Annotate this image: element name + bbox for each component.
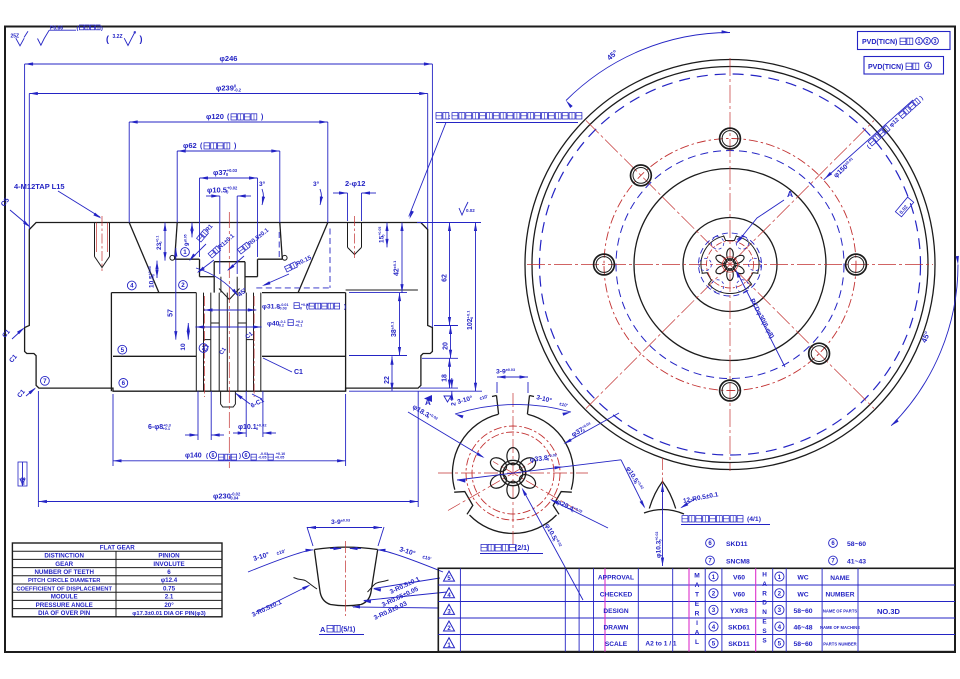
- svg-text:): ): [101, 26, 103, 32]
- svg-text:DIA OF OVER PIN: DIA OF OVER PIN: [38, 610, 91, 617]
- svg-text:NAME OF MACHINE: NAME OF MACHINE: [820, 625, 860, 630]
- svg-text:φ31.8-0.01-0.03: φ31.8-0.01-0.03: [262, 303, 289, 311]
- svg-text:A2 to 1 / 1: A2 to 1 / 1: [645, 640, 676, 647]
- svg-text:): ): [140, 34, 143, 44]
- svg-text:S: S: [762, 628, 767, 635]
- svg-text:NUMBER OF TEETH: NUMBER OF TEETH: [34, 569, 94, 576]
- svg-text:5: 5: [712, 640, 716, 647]
- svg-text:3: 3: [934, 39, 937, 45]
- svg-text:7: 7: [43, 378, 47, 385]
- svg-text:3.2Z: 3.2Z: [113, 34, 123, 40]
- svg-text:φ17.3±0.01 DIA OF PIN(φ3): φ17.3±0.01 DIA OF PIN(φ3): [132, 611, 206, 617]
- svg-text:APPROVAL: APPROVAL: [598, 575, 634, 582]
- svg-text:57: 57: [168, 309, 175, 317]
- svg-text:4: 4: [927, 63, 930, 69]
- svg-text:SKD11: SKD11: [726, 541, 748, 548]
- svg-text:0.02: 0.02: [466, 208, 475, 213]
- svg-text:E: E: [695, 601, 700, 608]
- svg-text:DESIGN: DESIGN: [603, 608, 629, 615]
- svg-text:1: 1: [183, 249, 187, 256]
- svg-text:NAME: NAME: [830, 575, 850, 582]
- svg-text:φ40-0.1-0.2: φ40-0.1-0.2: [267, 320, 286, 328]
- svg-text:COEFFICIENT OF DISPLACEMENT: COEFFICIENT OF DISPLACEMENT: [16, 586, 112, 592]
- svg-text:(: (: [306, 305, 308, 311]
- svg-text:(: (: [206, 454, 208, 460]
- svg-text:2-φ12: 2-φ12: [345, 179, 365, 188]
- svg-text:SNCM8: SNCM8: [726, 559, 750, 566]
- svg-text:22: 22: [384, 376, 391, 384]
- svg-text:YXR3: YXR3: [730, 608, 748, 615]
- svg-text:φ12.4: φ12.4: [161, 577, 178, 584]
- svg-text:1: 1: [712, 574, 716, 581]
- svg-text:PVD(TICN): PVD(TICN): [868, 64, 903, 71]
- svg-text:1: 1: [778, 574, 782, 581]
- svg-text:A: A: [787, 189, 793, 199]
- svg-text:I: I: [696, 620, 698, 627]
- svg-text:+0.10+0.05: +0.10+0.05: [275, 452, 285, 460]
- svg-text:(5/1): (5/1): [341, 627, 355, 634]
- svg-text:): ): [234, 143, 236, 150]
- svg-text:M: M: [694, 573, 700, 580]
- svg-text:58~60: 58~60: [793, 641, 812, 648]
- svg-text:φ246: φ246: [220, 54, 238, 63]
- svg-text:46~48: 46~48: [793, 625, 812, 632]
- svg-text:GEAR: GEAR: [55, 561, 73, 568]
- svg-text:PITCH CIRCLE DIAMETER: PITCH CIRCLE DIAMETER: [28, 578, 101, 584]
- svg-text:20°: 20°: [164, 602, 174, 609]
- svg-text:V60: V60: [733, 575, 745, 582]
- svg-text:): ): [344, 305, 346, 311]
- svg-text:L: L: [695, 639, 699, 646]
- svg-text:A: A: [695, 630, 700, 637]
- svg-text:SCALE: SCALE: [605, 641, 628, 648]
- svg-text:P0.66: P0.66: [50, 25, 63, 31]
- svg-text:PVD(TICN): PVD(TICN): [862, 39, 897, 46]
- svg-text:): ): [239, 454, 241, 460]
- svg-text:4: 4: [778, 624, 782, 631]
- svg-text:6-φ8+0.3+0.1: 6-φ8+0.3+0.1: [148, 422, 172, 431]
- svg-text:SKD11: SKD11: [728, 641, 750, 648]
- svg-text:5: 5: [121, 347, 125, 354]
- svg-text:R: R: [762, 590, 767, 597]
- svg-text:φ62: φ62: [183, 141, 197, 150]
- svg-text:INVOLUTE: INVOLUTE: [153, 561, 184, 568]
- svg-text:2: 2: [712, 591, 716, 598]
- svg-text:NO.3D: NO.3D: [877, 607, 901, 616]
- svg-text:SKD61: SKD61: [728, 625, 750, 632]
- svg-text:φ140: φ140: [185, 453, 202, 460]
- svg-text:D: D: [762, 600, 767, 607]
- svg-text:A: A: [695, 582, 700, 589]
- svg-text:WC: WC: [797, 575, 808, 582]
- svg-text:5: 5: [778, 640, 782, 647]
- svg-text:58~60: 58~60: [793, 608, 812, 615]
- svg-text:E: E: [762, 619, 767, 626]
- svg-text:10: 10: [180, 343, 187, 351]
- svg-text:T: T: [695, 592, 699, 599]
- svg-text:2.1: 2.1: [165, 594, 174, 601]
- svg-text:4: 4: [130, 283, 134, 290]
- svg-text:NUMBER: NUMBER: [826, 592, 855, 599]
- svg-text:CHECKED: CHECKED: [600, 591, 633, 598]
- svg-text:6: 6: [212, 453, 215, 459]
- svg-text:2: 2: [926, 39, 929, 45]
- svg-text:4-M12TAP L15: 4-M12TAP L15: [14, 182, 65, 191]
- svg-text:R: R: [695, 611, 700, 618]
- svg-text:25Z: 25Z: [11, 34, 20, 40]
- svg-text:C1: C1: [294, 369, 303, 376]
- svg-text:MODULE: MODULE: [51, 594, 78, 601]
- svg-text:(4/1): (4/1): [747, 516, 761, 523]
- svg-text:DISTINCTION: DISTINCTION: [44, 553, 84, 560]
- svg-text:6: 6: [122, 380, 126, 387]
- svg-text:3°: 3°: [313, 180, 320, 188]
- svg-text:58~60: 58~60: [847, 541, 866, 548]
- svg-text:20: 20: [443, 342, 450, 350]
- svg-text:DRAWN: DRAWN: [604, 625, 629, 632]
- svg-text:PARTS NUMBER: PARTS NUMBER: [823, 642, 856, 647]
- svg-text:1: 1: [918, 39, 921, 45]
- svg-text:FLAT GEAR: FLAT GEAR: [100, 544, 135, 551]
- svg-text:G: G: [134, 31, 137, 35]
- svg-text:6: 6: [245, 453, 248, 459]
- svg-text:A: A: [762, 581, 767, 588]
- svg-text:φ120: φ120: [206, 112, 224, 121]
- svg-text:PRESSURE ANGLE: PRESSURE ANGLE: [36, 602, 93, 609]
- svg-text:3: 3: [778, 607, 782, 614]
- svg-text:+0.2+0.1: +0.2+0.1: [295, 320, 303, 328]
- svg-text:φ230-0.02-0.04: φ230-0.02-0.04: [213, 492, 241, 501]
- svg-text:V60: V60: [733, 591, 745, 598]
- svg-text:N: N: [762, 609, 767, 616]
- svg-text:A: A: [320, 625, 326, 634]
- svg-text:PINION: PINION: [158, 553, 180, 560]
- svg-text:41~43: 41~43: [847, 559, 866, 566]
- svg-text:62: 62: [442, 274, 449, 282]
- svg-text:18: 18: [442, 374, 449, 382]
- svg-text:H: H: [762, 572, 767, 579]
- svg-text:(: (: [77, 26, 79, 32]
- svg-text::: :: [449, 114, 451, 121]
- svg-text:2: 2: [181, 282, 185, 289]
- svg-text:NAME OF PARTS: NAME OF PARTS: [823, 609, 858, 614]
- svg-text:2: 2: [778, 591, 782, 598]
- svg-text:): ): [261, 114, 263, 121]
- svg-text:6: 6: [167, 569, 171, 576]
- svg-text:3°: 3°: [259, 180, 266, 188]
- svg-text:4: 4: [712, 624, 716, 631]
- svg-text:S: S: [762, 637, 767, 644]
- svg-text:2: 2: [451, 402, 458, 406]
- svg-text:WC: WC: [797, 591, 808, 598]
- svg-text:0.75: 0.75: [163, 585, 176, 592]
- svg-text:(: (: [106, 34, 109, 44]
- svg-text:(2/1): (2/1): [515, 545, 529, 552]
- svg-text:3: 3: [712, 607, 716, 614]
